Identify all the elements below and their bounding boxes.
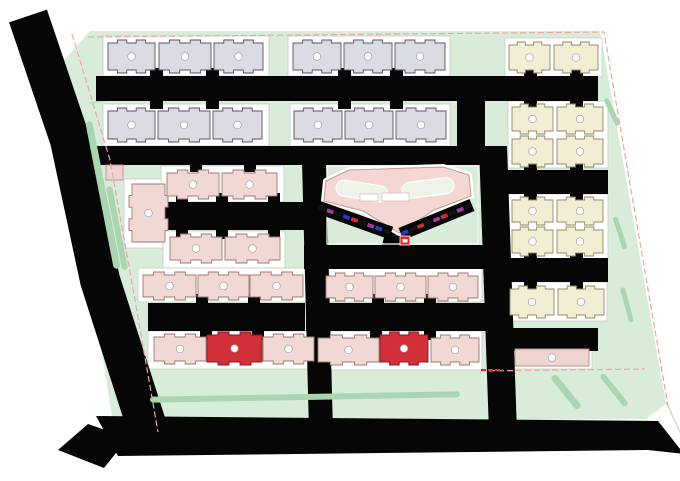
site-plan-canvas: [0, 0, 680, 481]
building-number-badge: [576, 207, 584, 215]
road-north-stub: [150, 99, 163, 109]
building-number-badge: [313, 53, 321, 61]
building-number-badge: [189, 181, 197, 189]
building-gray: [159, 40, 211, 73]
building-number-badge: [181, 53, 189, 61]
building-pink: [198, 272, 249, 300]
building-number-badge: [365, 121, 373, 129]
building-number-badge: [285, 345, 293, 353]
road-east-parking-court: [510, 328, 598, 351]
building-pink: [143, 272, 196, 300]
building-number-badge: [529, 115, 537, 123]
building-pink: [225, 234, 280, 263]
building-cream: [512, 227, 553, 256]
building-pink: [326, 273, 373, 301]
building-flat_pink: [515, 349, 589, 366]
road-north-stub: [206, 99, 219, 109]
building-pink: [167, 170, 219, 199]
building-red: [380, 332, 428, 365]
building-number-badge: [145, 209, 153, 217]
building-cream: [558, 286, 604, 318]
road-mid-lane: [160, 202, 304, 230]
school-label: [382, 193, 409, 201]
building-gray: [294, 108, 342, 142]
building-number-badge: [577, 298, 585, 306]
building-pink: [222, 170, 277, 199]
building-number-badge: [528, 298, 536, 306]
building-number-badge: [451, 346, 459, 354]
building-number-badge: [526, 54, 534, 62]
road-east-lane3: [506, 258, 608, 282]
building-number-badge: [346, 283, 354, 291]
building-number-badge: [576, 148, 584, 156]
building-number-badge: [249, 245, 257, 253]
building-number-badge: [529, 148, 537, 156]
building-pink: [318, 335, 379, 365]
building-pink: [129, 184, 168, 242]
road-north: [96, 76, 598, 101]
road-crosstown-stub: [244, 163, 256, 172]
building-number-badge: [397, 283, 405, 291]
building-number-badge: [345, 346, 353, 354]
building-number-badge: [364, 53, 372, 61]
building-number-badge: [576, 115, 584, 123]
building-number-badge: [572, 54, 580, 62]
road-main-crosstown: [58, 146, 492, 165]
building-number-badge: [234, 121, 242, 129]
building-number-badge: [180, 121, 188, 129]
building-gray: [293, 40, 341, 73]
building-number-badge: [576, 238, 584, 246]
building-number-badge: [128, 53, 136, 61]
building-number-badge: [449, 283, 457, 291]
road-north-stub: [390, 99, 403, 109]
building-number-badge: [192, 245, 200, 253]
building-number-badge: [166, 282, 174, 290]
building-number-badge: [416, 53, 424, 61]
building-cream: [557, 197, 603, 225]
building-pink: [428, 273, 478, 301]
building-cream: [554, 42, 598, 73]
building-gray: [396, 108, 446, 142]
building-gray: [345, 108, 393, 142]
building-cream: [512, 104, 553, 134]
building-pink: [170, 234, 222, 263]
building-footprint: [106, 165, 123, 180]
building-gray: [214, 40, 263, 73]
road-south: [96, 416, 680, 456]
building-number-badge: [231, 345, 239, 353]
building-number-badge: [400, 345, 408, 353]
road-southeast-lane: [306, 303, 507, 331]
building-number-badge: [128, 121, 136, 129]
building-number-badge: [417, 121, 425, 129]
building-cream: [557, 136, 603, 167]
building-number-badge: [314, 121, 322, 129]
road-north-stub: [338, 99, 351, 109]
building-cream: [512, 197, 553, 225]
building-number-badge: [220, 282, 228, 290]
building-number-badge: [273, 282, 281, 290]
building-gray: [395, 40, 445, 73]
building-number-badge: [529, 207, 537, 215]
building-pink: [154, 334, 206, 364]
road-school-south: [304, 245, 506, 269]
building-number-badge: [529, 238, 537, 246]
building-number-badge: [246, 181, 254, 189]
building-flat_pink: [106, 165, 123, 180]
building-pink: [375, 273, 426, 301]
building-cream: [510, 286, 554, 318]
building-number-badge: [548, 354, 556, 362]
building-gray: [213, 108, 262, 142]
building-red: [207, 332, 262, 365]
school-label: [360, 194, 378, 201]
building-gray: [108, 40, 155, 73]
building-gray: [108, 108, 155, 142]
building-cream: [557, 227, 603, 256]
entrance-marker-glyph: [403, 239, 408, 243]
building-gray: [158, 108, 210, 142]
building-pink: [263, 334, 314, 364]
marker-layer: [400, 236, 410, 245]
building-pink: [250, 272, 303, 300]
building-number-badge: [235, 53, 243, 61]
road-east-lane2: [506, 170, 608, 194]
building-number-badge: [176, 345, 184, 353]
building-cream: [509, 42, 550, 73]
road-southwest-lane: [148, 303, 305, 331]
site-plan: [0, 0, 680, 481]
building-pink: [431, 335, 479, 365]
building-cream: [557, 104, 603, 134]
building-gray: [344, 40, 392, 73]
building-cream: [512, 136, 553, 167]
